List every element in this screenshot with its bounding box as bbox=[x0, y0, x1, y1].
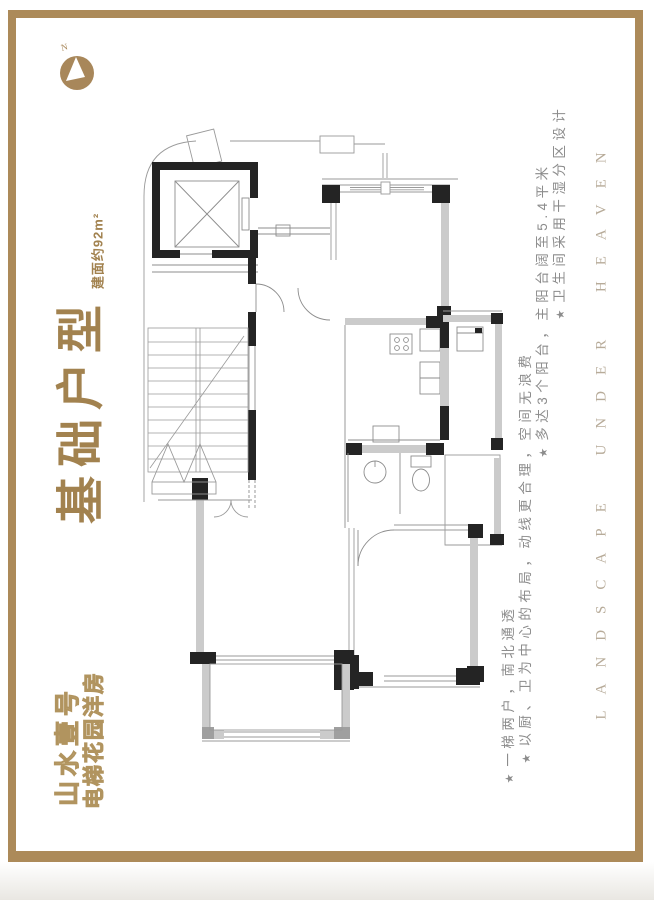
wall bbox=[196, 500, 204, 652]
ac-unit bbox=[320, 136, 354, 153]
selling-point: ★卫生间采用干湿分区设计 bbox=[548, 105, 568, 320]
door-arc bbox=[298, 288, 330, 320]
door-arc bbox=[358, 530, 394, 566]
door-arc bbox=[231, 500, 248, 517]
living-room bbox=[190, 478, 354, 690]
star-icon: ★ bbox=[504, 774, 516, 784]
floor-plan bbox=[138, 110, 513, 775]
toilet-icon bbox=[411, 456, 431, 467]
bathroom bbox=[346, 443, 444, 566]
elevator bbox=[152, 162, 258, 272]
wall bbox=[470, 536, 478, 672]
page-edge-shadow bbox=[0, 862, 654, 900]
door-arc bbox=[256, 284, 284, 312]
star-icon: ★ bbox=[555, 310, 567, 320]
brand-tagline: 电梯花园洋房 bbox=[78, 671, 108, 809]
south-balcony bbox=[202, 664, 350, 741]
selling-point-text: 卫生间采用干湿分区设计 bbox=[552, 105, 567, 303]
compass-north-label: N bbox=[60, 41, 69, 52]
hall bbox=[248, 225, 330, 508]
wall bbox=[441, 203, 449, 308]
sink-counter bbox=[420, 329, 440, 351]
compass-icon bbox=[56, 52, 98, 94]
star-icon: ★ bbox=[521, 754, 533, 764]
page-title: 基础户型 bbox=[41, 296, 111, 524]
star-icon: ★ bbox=[538, 448, 550, 458]
stove-icon bbox=[390, 334, 412, 354]
wall-corner bbox=[432, 185, 450, 203]
stairs bbox=[148, 328, 248, 472]
service-balcony bbox=[443, 311, 503, 450]
bedroom-north bbox=[322, 179, 458, 322]
side-caption: LANDSCAPE UNDER HEAVEN bbox=[594, 136, 611, 719]
door-arc bbox=[214, 500, 231, 517]
bedroom-south bbox=[343, 524, 484, 689]
kitchen bbox=[345, 316, 449, 528]
wall-corner bbox=[322, 185, 340, 203]
brochure-page: N 基础户型 建面约92m² 山水壹号 电梯花园洋房 ★一梯两户，南北通透 ★以… bbox=[0, 0, 654, 900]
area-note: 建面约92m² bbox=[88, 213, 107, 289]
